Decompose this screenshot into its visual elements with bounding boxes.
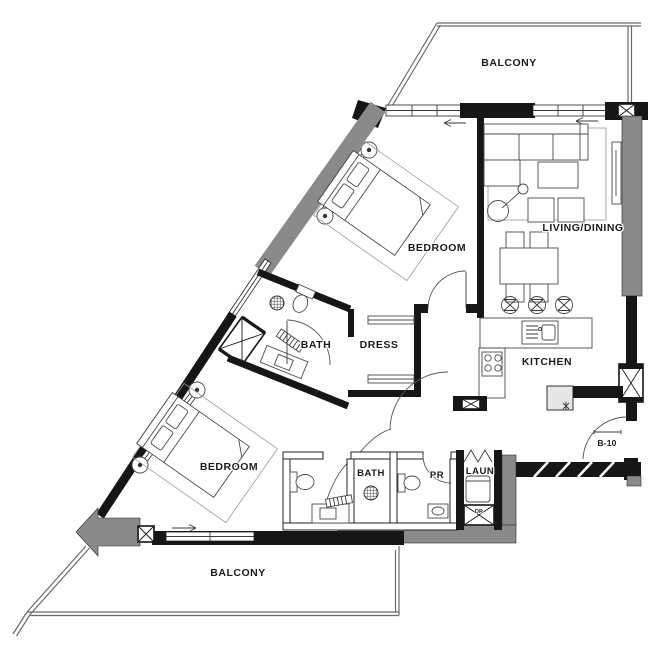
fridge <box>547 386 573 411</box>
ottoman <box>558 198 584 222</box>
top-wall-mid <box>460 103 535 118</box>
pr-east-wall <box>450 459 457 523</box>
dining-table <box>500 248 558 284</box>
dining-chair <box>506 232 524 250</box>
pr-label: PR <box>430 470 444 481</box>
balcony-bottom-railing <box>13 546 399 636</box>
bifold-door <box>464 450 492 462</box>
bar-stool-icon <box>502 297 573 314</box>
bath-pr-divider-wall <box>390 452 397 530</box>
top-shaft-icon <box>618 104 635 117</box>
cooktop-counter <box>479 348 505 398</box>
kitchen-island <box>480 318 592 348</box>
bedroom-bottom-door <box>326 429 391 502</box>
right-shear-wall <box>622 116 642 296</box>
balcony-bottom-label: BALCONY <box>210 567 265 579</box>
living-dining-label: LIVING/DINING <box>542 222 623 234</box>
shower-drain-icon <box>364 486 378 500</box>
dress-east-wall <box>414 305 421 397</box>
bath-window <box>228 259 271 318</box>
balcony-bottom: BALCONY <box>13 546 399 636</box>
dress-label: DRESS <box>360 339 399 351</box>
balcony-top: BALCONY <box>388 23 641 108</box>
bottom-wall-shaft-icon <box>138 526 154 542</box>
bedroom-top-door <box>414 271 483 313</box>
tv-console <box>612 142 621 204</box>
right-wall-lower <box>626 402 637 421</box>
laundry-label: LAUN <box>466 466 494 477</box>
bath-bottom-label: BATH <box>357 468 385 479</box>
dryer-label: DR <box>475 509 483 515</box>
washer <box>466 476 490 502</box>
ottoman <box>528 198 554 222</box>
dryer-shaft-icon: DR <box>464 505 494 525</box>
bath-bottom-block: BATH PR DR LAUN <box>283 450 516 530</box>
service-strip <box>502 455 516 525</box>
coffee-table <box>538 162 578 188</box>
bath-bottom-west-wall <box>283 452 290 530</box>
bath-mid-label: BATH <box>301 339 331 351</box>
dress-room: DRESS <box>348 305 421 397</box>
dress-south-wall <box>348 390 421 397</box>
balcony-top-label: BALCONY <box>481 57 536 69</box>
unit-number-label: B-10 <box>597 438 616 448</box>
slide-arrow-icon <box>172 525 196 532</box>
kitchen-south-wall <box>453 386 623 411</box>
pr-sink <box>428 504 448 518</box>
arc-lamp-icon <box>488 184 529 222</box>
bed <box>137 393 250 498</box>
toilet <box>398 474 420 492</box>
laundry-room: DR LAUN <box>456 450 502 530</box>
kitchen-label: KITCHEN <box>522 356 572 368</box>
floor-plan-canvas: BALCONY <box>0 0 672 650</box>
entry-door-b10: B-10 <box>583 417 627 459</box>
toilet <box>290 472 314 492</box>
bedroom-top-label: BEDROOM <box>408 242 466 254</box>
wall-end-arrow <box>76 508 140 556</box>
floor-plan: BALCONY <box>0 0 672 650</box>
shower-drain-icon <box>270 296 284 310</box>
dining-set <box>500 232 558 302</box>
right-wall <box>626 296 637 366</box>
bath-bottom-south-wall <box>283 523 457 530</box>
dining-chair <box>530 232 548 250</box>
corridor-wall <box>500 462 641 477</box>
living-bedroom-divider-wall <box>477 117 484 318</box>
corridor-wall-end <box>627 476 641 486</box>
kitchen: KITCHEN <box>390 297 623 431</box>
powder-room: PR <box>398 455 451 518</box>
bedroom-bottom-label: BEDROOM <box>200 461 258 473</box>
living-dining-room: LIVING/DINING <box>477 117 624 318</box>
